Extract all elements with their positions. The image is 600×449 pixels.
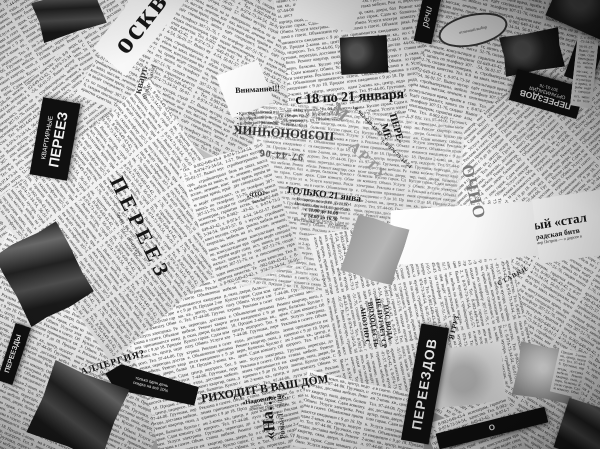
- banner-rechi-line: речи: [420, 5, 435, 28]
- headline-nas-voda: НАС ВОДАНЕ ПУГАЕТ СРВЫХОД ЕСТЬАНОЗ ПО С: [342, 286, 411, 362]
- newspaper-collage-photo: Black-and-white photograph: collage of t…: [0, 0, 600, 449]
- banner-bottom-right-line: О: [488, 423, 496, 433]
- headline-roman-vertical: «На…Роман Г. · лю: [241, 369, 304, 449]
- photo-black-phone: [339, 34, 390, 75]
- label-ochno-line: ОЧНО: [455, 156, 490, 229]
- stamp-oval-line: отличный выбор: [459, 25, 488, 35]
